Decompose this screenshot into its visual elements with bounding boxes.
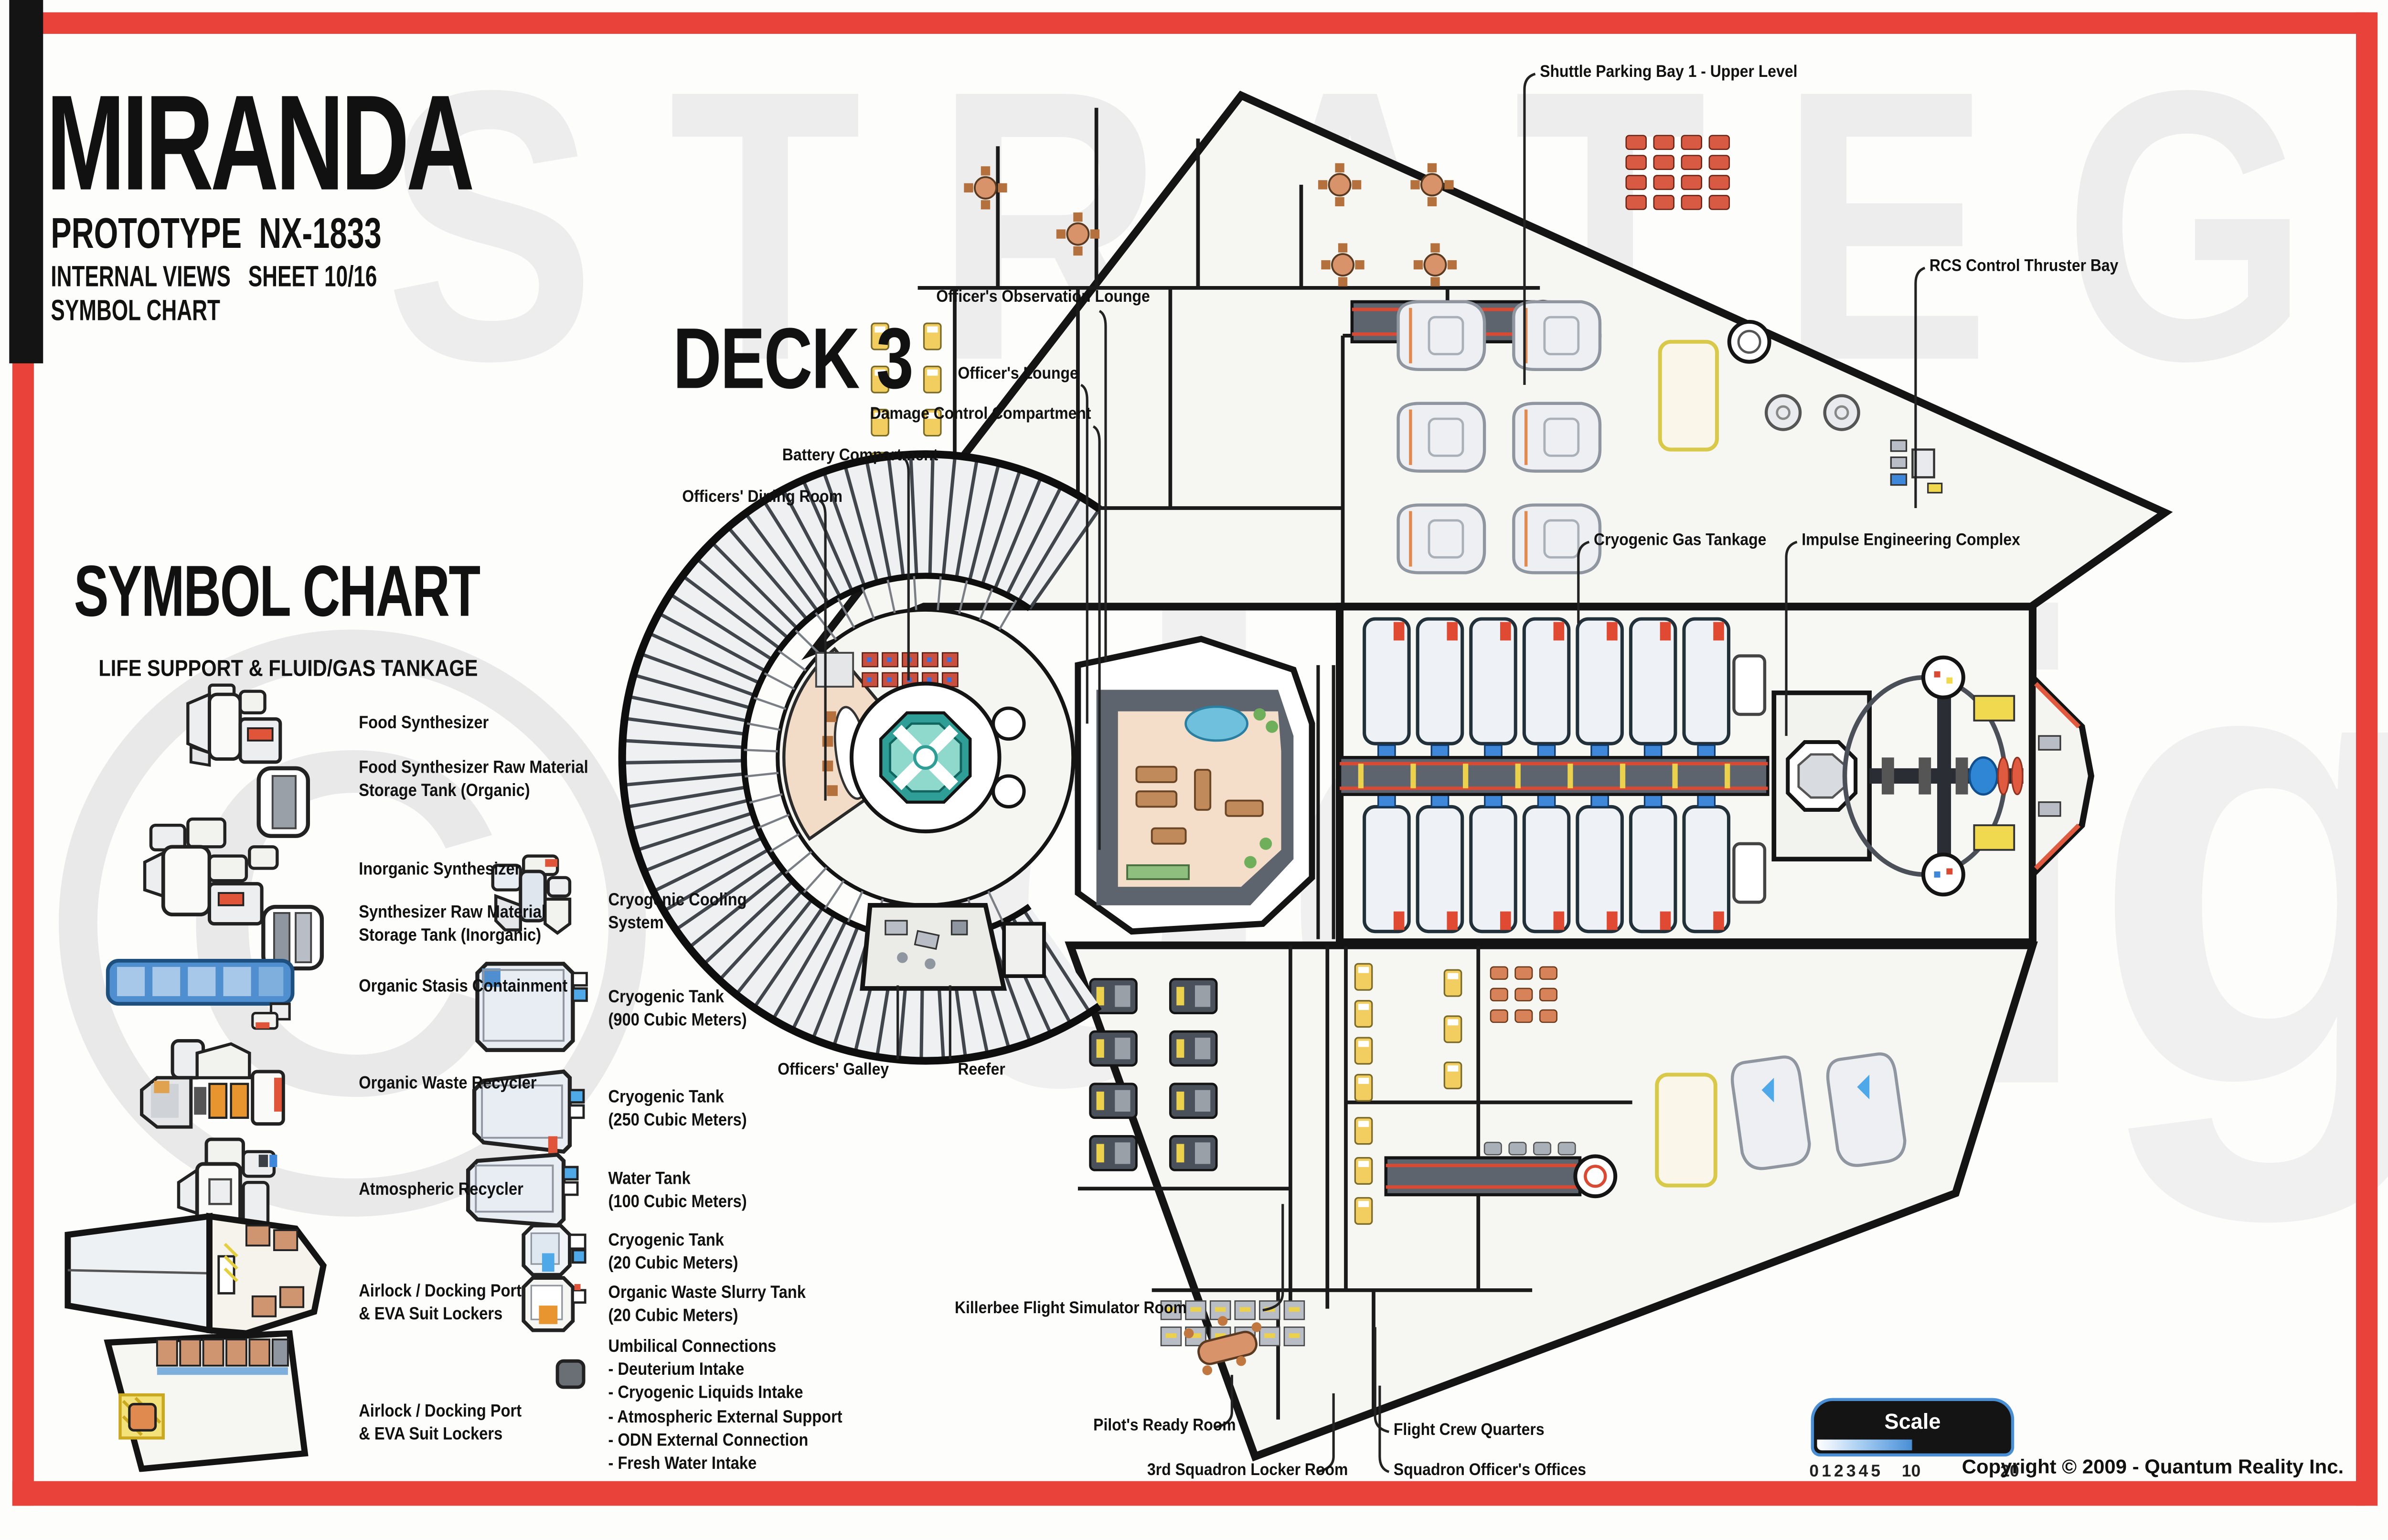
callout-rcs: RCS Control Thruster Bay (1930, 257, 2119, 276)
callout-squadron-offices: Squadron Officer's Offices (1394, 1461, 1586, 1480)
sheet-info: INTERNAL VIEWS SHEET 10/16 (51, 262, 377, 296)
reefer-room (1004, 924, 1044, 977)
scale-bar: Scale (1811, 1398, 2015, 1457)
legend-label: Food Synthesizer Raw Material Storage Ta… (359, 757, 588, 804)
callout-locker-room: 3rd Squadron Locker Room (1147, 1461, 1348, 1480)
lower-conduit (1386, 1156, 1615, 1196)
callout-officers-lounge: Officer's Lounge (958, 365, 1078, 383)
legend-label: Airlock / Docking Port & EVA Suit Locker… (359, 1281, 522, 1328)
frame-right (2356, 12, 2377, 1506)
organic-waste-recycler-icon (136, 1038, 317, 1139)
tankage-conduit (1340, 757, 1768, 794)
legend-label: Food Synthesizer (359, 713, 489, 736)
callout-flight-crew: Flight Crew Quarters (1394, 1421, 1545, 1440)
officers-galley (863, 905, 1004, 988)
scale-bar-label: Scale (1814, 1409, 2011, 1434)
prototype-number: PROTOTYPE NX-1833 (51, 209, 381, 258)
legend-label: Organic Waste Recycler (359, 1073, 536, 1096)
umbilical-connection-icon (554, 1358, 588, 1392)
blueprint-sheet: STRATEGIC © design (0, 0, 2388, 1540)
deck-heading: DECK 3 (673, 308, 912, 408)
food-synthesizer-icon (181, 682, 292, 768)
callout-battery: Battery Compartment (782, 446, 938, 465)
callout-galley: Officers' Galley (778, 1061, 889, 1079)
copyright-text: Copyright © 2009 - Quantum Reality Inc. (1771, 1455, 2344, 1478)
frame-bottom (12, 1481, 2366, 1506)
legend-label: Cryogenic Cooling System (608, 890, 747, 937)
legend-heading: SYMBOL CHART (74, 548, 480, 633)
cryo-tank-20-icon (521, 1222, 591, 1281)
callout-impulse: Impulse Engineering Complex (1802, 531, 2020, 550)
callout-ready-room: Pilot's Ready Room (1093, 1416, 1236, 1435)
shuttle-pad-upper (1660, 342, 1717, 450)
airlock-docking-port-1-icon (64, 1210, 330, 1339)
legend-label: Cryogenic Tank (900 Cubic Meters) (608, 987, 747, 1034)
legend-label: Cryogenic Tank (250 Cubic Meters) (608, 1087, 747, 1134)
callout-shuttle-bay: Shuttle Parking Bay 1 - Upper Level (1540, 63, 1797, 82)
shuttle-pad-lower (1657, 1074, 1716, 1185)
organic-stasis-containment-icon (105, 957, 312, 1031)
frame-top (12, 12, 2366, 34)
legend-label: Atmospheric Recycler (359, 1179, 523, 1203)
legend-label: Airlock / Docking Port & EVA Suit Locker… (359, 1401, 522, 1448)
stern-tip (2033, 678, 2091, 875)
legend-label: Organic Waste Slurry Tank (20 Cubic Mete… (608, 1283, 806, 1329)
ship-name: MIRANDA (46, 64, 471, 222)
officers-lounge-complex (1078, 639, 1333, 939)
legend-label: Synthesizer Raw Material Storage Tank (I… (359, 902, 546, 949)
sheet-type: SYMBOL CHART (51, 296, 220, 329)
legend-subheading: LIFE SUPPORT & FLUID/GAS TANKAGE (98, 656, 478, 682)
cryo-tank-900-icon (474, 961, 588, 1056)
airlock-ring (1729, 322, 1770, 362)
observation-lounge-sofas (1626, 136, 1729, 210)
legend-label: Water Tank (100 Cubic Meters) (608, 1168, 747, 1215)
legend-label: Cryogenic Tank (20 Cubic Meters) (608, 1230, 738, 1277)
callout-observation-lounge: Officer's Observation Lounge (936, 288, 1150, 307)
legend-label: Inorganic Synthesizer (359, 859, 521, 882)
callout-damage-control: Damage Control Compartment (870, 405, 1091, 424)
title-black-bar (9, 0, 43, 363)
airlock-docking-port-2-icon (96, 1330, 319, 1472)
legend-label: Organic Stasis Containment (359, 976, 567, 999)
callout-cryo-gas: Cryogenic Gas Tankage (1594, 531, 1766, 550)
callout-killerbee: Killerbee Flight Simulator Room (955, 1299, 1187, 1318)
waste-slurry-tank-icon (521, 1275, 595, 1337)
callout-dining-room: Officers' Dining Room (682, 488, 842, 507)
scale-bar-gradient (1817, 1440, 2008, 1451)
callout-reefer: Reefer (958, 1061, 1005, 1079)
legend-label-umbilical: Umbilical Connections - Deuterium Intake… (608, 1337, 842, 1477)
